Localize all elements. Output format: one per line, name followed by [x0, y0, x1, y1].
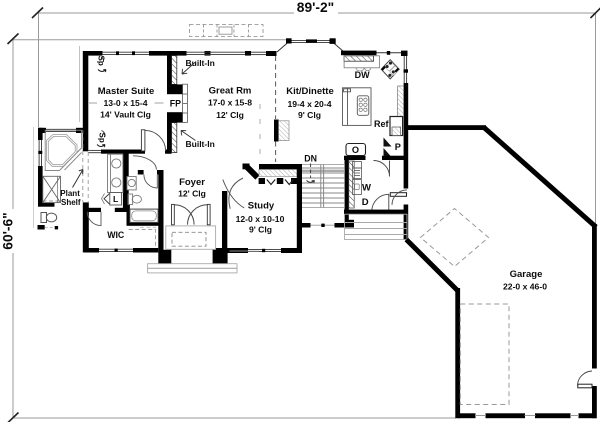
- svg-text:Master Suite: Master Suite: [98, 86, 155, 97]
- svg-text:14' Vault Clg: 14' Vault Clg: [100, 110, 151, 120]
- svg-text:13-0 x 15-4: 13-0 x 15-4: [104, 98, 148, 108]
- svg-text:Sp: Sp: [98, 133, 107, 143]
- svg-text:Built-In: Built-In: [186, 139, 215, 149]
- svg-text:W: W: [362, 183, 371, 194]
- svg-text:Great Rm: Great Rm: [209, 86, 252, 97]
- svg-text:L: L: [113, 194, 118, 204]
- svg-text:9' Clg: 9' Clg: [249, 225, 272, 235]
- svg-text:60'-6": 60'-6": [1, 212, 16, 249]
- svg-text:WIC: WIC: [107, 230, 125, 240]
- svg-text:22-0 x 46-0: 22-0 x 46-0: [503, 282, 547, 292]
- svg-text:89'-2": 89'-2": [297, 0, 334, 15]
- svg-text:Foyer: Foyer: [179, 177, 205, 188]
- svg-text:12' Clg: 12' Clg: [216, 110, 244, 120]
- svg-text:Kit/Dinette: Kit/Dinette: [286, 86, 334, 97]
- svg-text:D: D: [362, 197, 369, 208]
- svg-text:Study: Study: [248, 201, 275, 212]
- svg-text:Garage: Garage: [510, 269, 543, 280]
- svg-text:O: O: [352, 145, 359, 155]
- svg-text:Ref: Ref: [374, 119, 390, 129]
- svg-text:P: P: [395, 142, 401, 152]
- svg-text:19-4 x 20-4: 19-4 x 20-4: [288, 99, 332, 109]
- svg-text:9' Clg: 9' Clg: [298, 110, 321, 120]
- svg-text:DN: DN: [304, 153, 317, 163]
- svg-text:12' Clg: 12' Clg: [178, 189, 206, 199]
- svg-text:17-0 x 15-8: 17-0 x 15-8: [208, 98, 252, 108]
- svg-text:12-0 x 10-10: 12-0 x 10-10: [236, 214, 285, 224]
- svg-text:FP: FP: [170, 99, 181, 109]
- svg-text:Shelf: Shelf: [61, 198, 81, 207]
- svg-text:DW: DW: [355, 70, 370, 80]
